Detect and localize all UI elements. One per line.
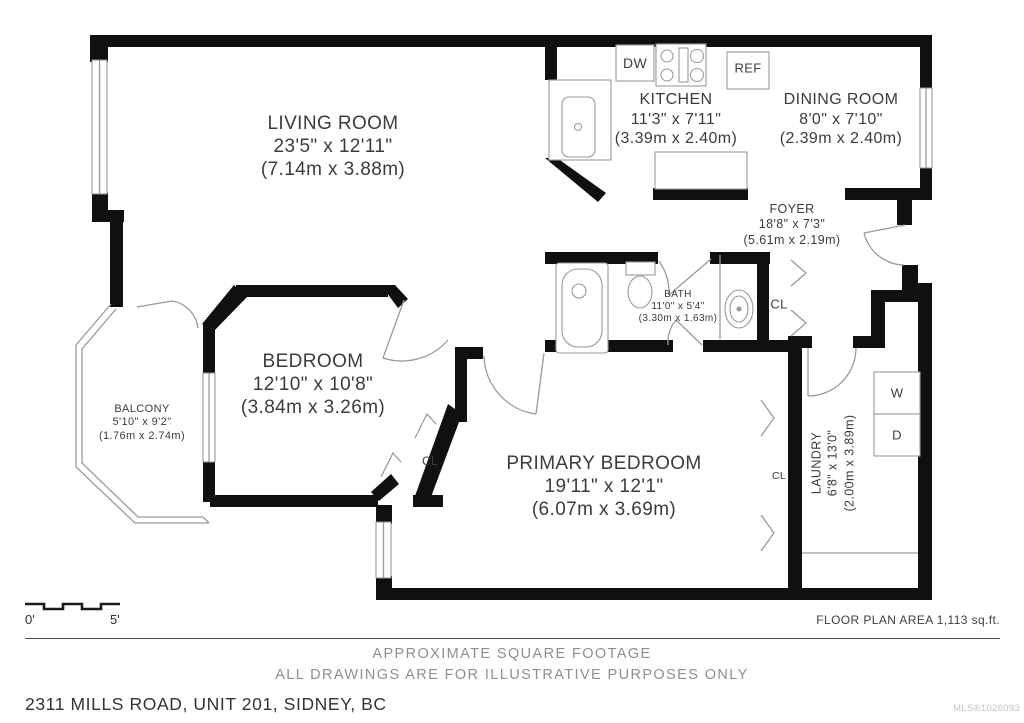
floor-plan-area-note: FLOOR PLAN AREA 1,113 sq.ft. xyxy=(816,613,1000,627)
room-dims-metric: (3.84m x 3.26m) xyxy=(241,396,385,419)
dishwasher-label: DW xyxy=(623,55,647,71)
kitchen-label: KITCHEN 11'3" x 7'11" (3.39m x 2.40m) xyxy=(615,90,737,149)
room-dims-metric: (2.39m x 2.40m) xyxy=(780,129,902,149)
footer-divider xyxy=(25,638,1000,639)
scale-bar xyxy=(25,604,120,609)
room-dims-metric: (3.30m x 1.63m) xyxy=(639,313,718,325)
foyer-label: FOYER 18'8" x 7'3" (5.61m x 2.19m) xyxy=(743,202,840,248)
room-dims-imperial: 12'10" x 10'8" xyxy=(241,373,385,396)
closet-label-foyer: CL xyxy=(770,297,787,312)
room-name: PRIMARY BEDROOM xyxy=(506,452,701,475)
footer-note-1: APPROXIMATE SQUARE FOOTAGE xyxy=(0,646,1024,662)
room-dims-imperial: 5'10" x 9'2" xyxy=(99,416,185,429)
floor-plan: LIVING ROOM 23'5" x 12'11" (7.14m x 3.88… xyxy=(0,0,1024,723)
dryer-label: D xyxy=(892,428,902,443)
living-room-label: LIVING ROOM 23'5" x 12'11" (7.14m x 3.88… xyxy=(261,112,405,182)
room-name: BALCONY xyxy=(99,403,185,416)
kitchen-peninsula xyxy=(655,152,747,189)
room-name: KITCHEN xyxy=(615,90,737,110)
room-name: LAUNDRY xyxy=(809,414,825,511)
bedroom-label: BEDROOM 12'10" x 10'8" (3.84m x 3.26m) xyxy=(241,350,385,420)
balcony-label: BALCONY 5'10" x 9'2" (1.76m x 2.74m) xyxy=(99,403,185,443)
room-name: DINING ROOM xyxy=(780,90,902,110)
room-dims-imperial: 19'11" x 12'1" xyxy=(506,475,701,498)
mls-watermark: MLS®1028093 xyxy=(953,703,1020,714)
room-name: BEDROOM xyxy=(241,350,385,373)
room-dims-imperial: 6'8" x 13'0" xyxy=(825,414,841,511)
room-dims-imperial: 11'3" x 7'11" xyxy=(615,110,737,130)
scale-start: 0' xyxy=(25,612,35,627)
room-dims-metric: (1.76m x 2.74m) xyxy=(99,430,185,443)
room-dims-metric: (2.00m x 3.89m) xyxy=(841,414,857,511)
footer-note-2: ALL DRAWINGS ARE FOR ILLUSTRATIVE PURPOS… xyxy=(0,667,1024,683)
closet-label-primary: CL xyxy=(772,470,786,482)
room-dims-imperial: 8'0" x 7'10" xyxy=(780,110,902,130)
room-dims-imperial: 11'0" x 5'4" xyxy=(639,301,718,313)
room-dims-metric: (6.07m x 3.69m) xyxy=(506,498,701,521)
room-dims-metric: (7.14m x 3.88m) xyxy=(261,158,405,181)
scale-end: 5' xyxy=(110,612,120,627)
toilet xyxy=(626,262,655,275)
room-name: LIVING ROOM xyxy=(261,112,405,135)
room-dims-metric: (5.61m x 2.19m) xyxy=(743,233,840,248)
room-dims-metric: (3.39m x 2.40m) xyxy=(615,129,737,149)
primary-bedroom-label: PRIMARY BEDROOM 19'11" x 12'1" (6.07m x … xyxy=(506,452,701,522)
room-dims-imperial: 23'5" x 12'11" xyxy=(261,135,405,158)
bath-label: BATH 11'0" x 5'4" (3.30m x 1.63m) xyxy=(639,289,718,326)
dining-room-label: DINING ROOM 8'0" x 7'10" (2.39m x 2.40m) xyxy=(780,90,902,149)
room-dims-imperial: 18'8" x 7'3" xyxy=(743,217,840,232)
refrigerator-label: REF xyxy=(735,61,762,76)
room-name: FOYER xyxy=(743,202,840,217)
laundry-label: LAUNDRY 6'8" x 13'0" (2.00m x 3.89m) xyxy=(809,414,858,511)
room-name: BATH xyxy=(639,289,718,301)
closet-label-bedroom: CL xyxy=(422,454,438,468)
washer-label: W xyxy=(891,386,904,401)
property-address: 2311 MILLS ROAD, UNIT 201, SIDNEY, BC xyxy=(25,694,387,715)
